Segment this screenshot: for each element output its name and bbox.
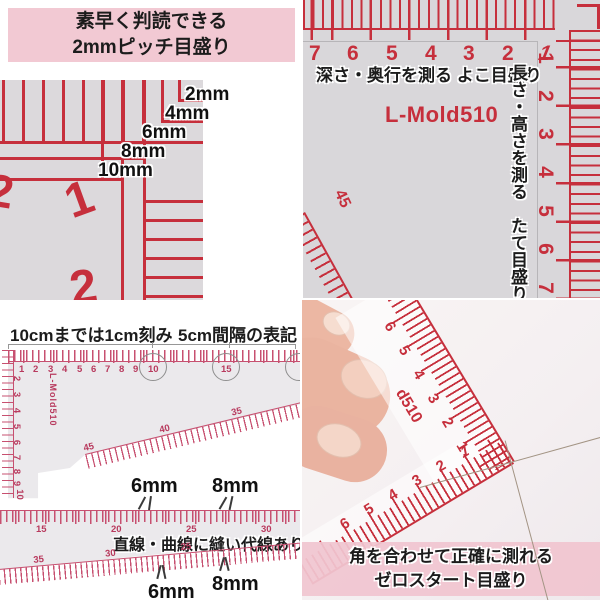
- scale-number: 2: [438, 415, 457, 431]
- seam-width-label-8mm: 8mm: [212, 573, 259, 596]
- photo-zero-start-corner: 1 2 3 4 5 6 1 2 3 4 5 6 d510: [302, 300, 600, 600]
- banner-line: 素早く判読できる: [76, 9, 228, 35]
- scale-spine: [569, 30, 571, 298]
- scale-number: 4: [409, 367, 428, 383]
- ruler-numeral: 2: [0, 162, 18, 219]
- scale-number: 3: [533, 128, 557, 140]
- scale-number: 6: [533, 243, 557, 255]
- scale-number: 6: [91, 364, 96, 375]
- scale-number: 3: [424, 391, 443, 407]
- tick-comb-cm: [0, 510, 300, 524]
- scale-number: 5: [533, 205, 557, 217]
- scale-number: 15: [36, 524, 47, 535]
- highlight-circle-15: [212, 353, 240, 381]
- scale-number: 6: [11, 440, 22, 445]
- curve-label: 45: [82, 441, 95, 454]
- ruler-line: [161, 80, 164, 122]
- tick-comb-cm: [556, 40, 600, 298]
- scale-number: 5: [11, 424, 22, 429]
- scale-number: 7: [533, 282, 557, 294]
- seam-width-label-8mm: 8mm: [212, 475, 259, 498]
- banner-line: ゼロスタート目盛り: [375, 569, 528, 593]
- pointer-line: [148, 496, 151, 510]
- curve-label: 25: [180, 541, 191, 553]
- curve-label: 35: [230, 405, 243, 418]
- product-name-vertical: L-Mold510: [48, 373, 58, 427]
- feature-banner-zero-start: 角を合わせて正確に測れる ゼロスタート目盛り: [302, 542, 600, 596]
- ruler-numeral: 2: [66, 258, 101, 300]
- scale-number: 9: [133, 364, 138, 375]
- scale-number: 6: [380, 319, 399, 335]
- scale-number: 4: [62, 364, 67, 375]
- seam-width-label-6mm: 6mm: [131, 475, 178, 498]
- heading-5cm-notation: 5cm間隔の表記: [178, 321, 297, 346]
- scale-number: 4: [533, 166, 557, 178]
- scale-number: 7: [11, 455, 22, 460]
- scale-number: 10: [14, 489, 25, 500]
- scale-number: 4: [11, 408, 22, 413]
- step-label-10mm: 10mm: [98, 160, 153, 182]
- scale-number: 2: [533, 90, 557, 102]
- scale-number: 2: [33, 364, 38, 375]
- banner-line: 2mmピッチ目盛り: [72, 35, 230, 61]
- scale-number: 7: [105, 364, 110, 375]
- scale-number: 1: [533, 52, 557, 64]
- product-name: L-Mold510: [385, 102, 498, 128]
- pointer-line: [138, 496, 146, 509]
- curve-label: 30: [105, 548, 116, 560]
- pointer-line: [219, 497, 227, 510]
- scale-number: 5: [77, 364, 82, 375]
- tick-comb-cm: [303, 0, 555, 40]
- scale-spine: [303, 28, 555, 30]
- scale-number: 5: [395, 343, 414, 359]
- highlight-circle-10: [139, 353, 167, 381]
- photo-ruler-scales: 7 6 5 4 3 2 1 深さ・奥行を測る よこ目盛り L-Mold510 1…: [303, 0, 600, 298]
- tick-comb: [146, 200, 203, 300]
- tick-comb: [2, 80, 148, 143]
- caption-vertical-scale: 長さ・高さを測る たて目盛り: [505, 64, 530, 298]
- banner-line: 角を合わせて正確に測れる: [349, 545, 553, 569]
- pointer-line: [229, 496, 233, 510]
- corner-mark: [577, 4, 600, 29]
- scale-number: 8: [11, 469, 22, 474]
- curve-label: 35: [33, 554, 44, 566]
- scale-number: 8: [119, 364, 124, 375]
- heading-1cm-increments: 10cmまでは1cm刻み: [10, 321, 173, 346]
- scan-l-ruler-diagram: 1 2 3 4 5 6 7 8 9 10 15 2 3 4 5 6 7 8 9 …: [0, 348, 300, 600]
- curve-label: 40: [158, 423, 171, 436]
- diagonal-label: 45: [330, 187, 354, 211]
- ruler-line: [121, 80, 124, 300]
- feature-banner-2mm-pitch: 素早く判読できる 2mmピッチ目盛り: [8, 8, 295, 62]
- scale-number: 2: [11, 376, 22, 381]
- diagonal-comb: [303, 212, 358, 298]
- product-feature-collage: 素早く判読できる 2mmピッチ目盛り 2 1 2 2mm 4mm 6mm 8mm…: [0, 0, 600, 600]
- scale-number: 3: [11, 392, 22, 397]
- scale-number: 9: [11, 481, 22, 486]
- seam-width-label-6mm: 6mm: [148, 581, 195, 600]
- ruler-line: [178, 80, 181, 101]
- scale-number: 1: [19, 364, 24, 375]
